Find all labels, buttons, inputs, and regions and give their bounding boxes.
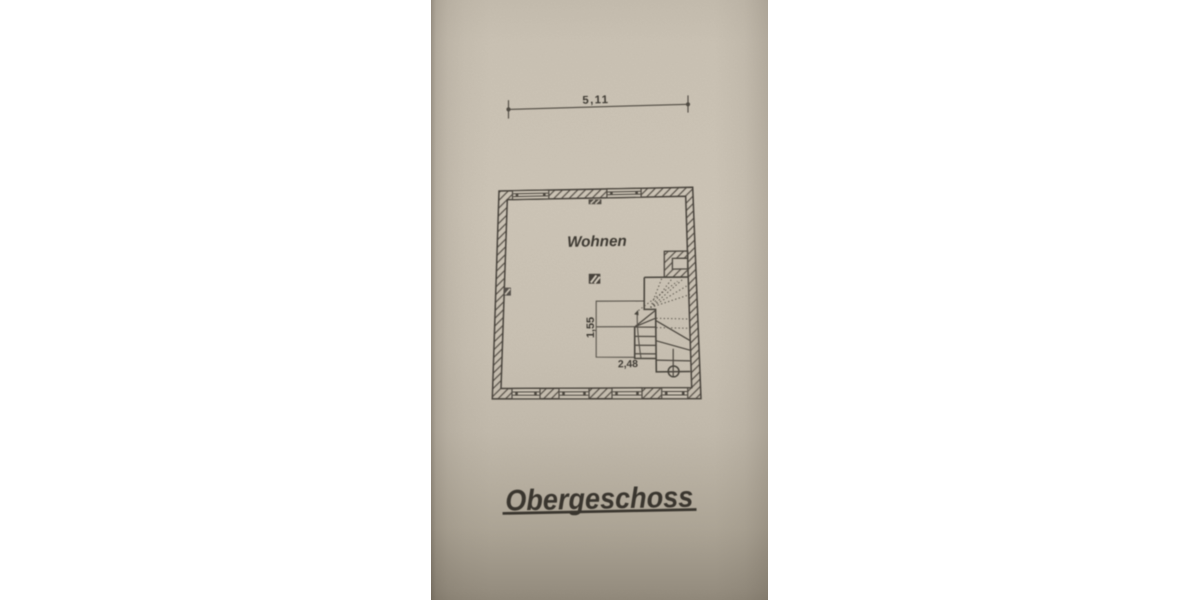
svg-text:5,11: 5,11 [582,94,609,107]
svg-text:Wohnen: Wohnen [567,233,627,251]
svg-text:2,48: 2,48 [618,359,639,370]
svg-text:1,55: 1,55 [585,317,597,338]
